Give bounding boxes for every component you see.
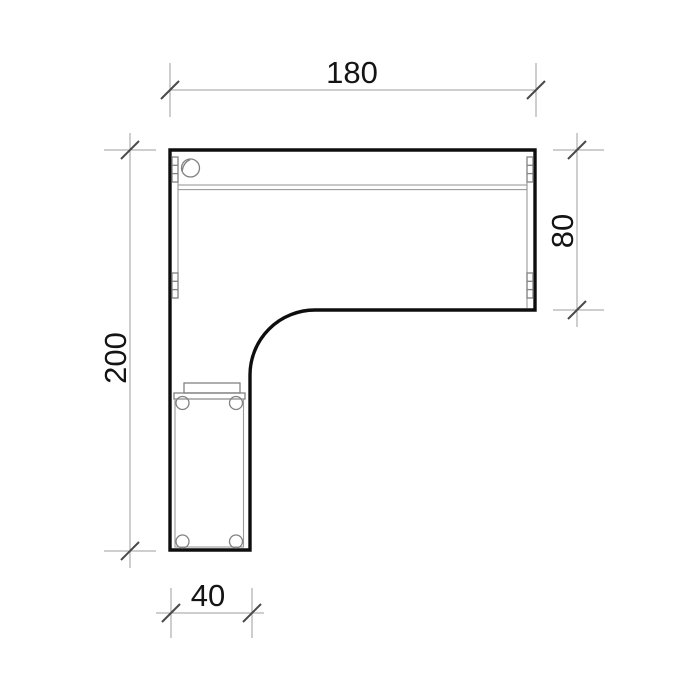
- dimension-label-bottom: 40: [191, 578, 225, 613]
- desk-technical-drawing: 180 80 200 40: [0, 0, 700, 700]
- dimension-left-depth: 200: [98, 133, 156, 568]
- dimension-label-top: 180: [326, 55, 378, 90]
- desk-outline: [170, 150, 535, 550]
- dimension-bottom-width: 40: [156, 578, 264, 638]
- dimension-right-depth: 80: [545, 133, 604, 327]
- dimension-label-right: 80: [545, 214, 580, 248]
- dimension-top-width: 180: [161, 55, 545, 117]
- drawing-canvas: 180 80 200 40: [0, 0, 700, 700]
- dimension-label-left: 200: [98, 332, 133, 384]
